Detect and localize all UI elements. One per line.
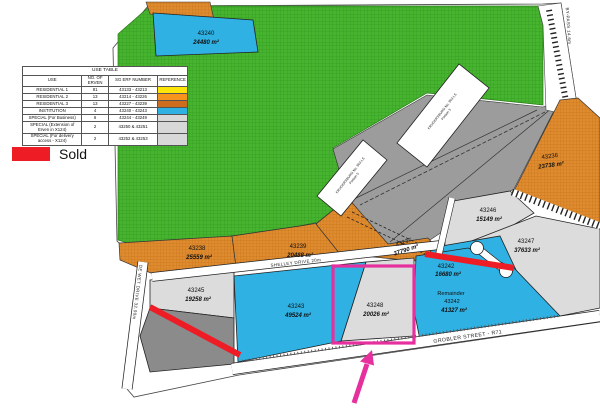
parcel-43246-id: 43246 xyxy=(480,208,497,214)
ref-swatch xyxy=(158,133,188,145)
parcel-43238-area: 25559 m² xyxy=(185,254,213,261)
use-table-row: RESIDENTIAL 213 43214 - 43226 xyxy=(23,94,188,101)
parcel-43240-id: 43240 xyxy=(198,31,215,37)
parcel-remainder-prefix: Remainder xyxy=(437,291,464,297)
township-map: BY-PASS 14.6m KRUGERSBURG No. 963-LS Por… xyxy=(0,0,600,415)
parcel-43239-id: 43239 xyxy=(290,244,307,250)
use-table-row: RESIDENTIAL 313 43227 - 43239 xyxy=(23,101,188,108)
parcel-43239-area: 20488 m² xyxy=(286,252,314,259)
parcel-43245-area: 19258 m² xyxy=(185,296,212,303)
site-plan-page: BY-PASS 14.6m KRUGERSBURG No. 963-LS Por… xyxy=(0,0,600,415)
sold-legend-label: Sold xyxy=(59,146,87,162)
parcel-43248-id: 43248 xyxy=(367,303,384,309)
sold-legend: Sold xyxy=(12,146,87,162)
use-table-row: SPECIAL (For delivery access - X124)2 43… xyxy=(23,133,188,145)
ref-swatch xyxy=(158,115,188,122)
use-table-title: USE TABLE xyxy=(23,67,188,76)
parcel-remainder-id: 43242 xyxy=(444,299,460,305)
parcel-43248-area: 20026 m² xyxy=(362,311,390,318)
parcel-43244-shape xyxy=(140,308,234,372)
parcel-43245-id: 43245 xyxy=(188,288,205,294)
parcel-43243-id: 43243 xyxy=(288,304,305,310)
use-table-row: SPECIAL (For Business)6 43244 - 43249 xyxy=(23,115,188,122)
parcel-43247-id: 43247 xyxy=(518,239,535,245)
ref-swatch xyxy=(158,101,188,108)
use-table: USE TABLE USE NO. OF ERVEN SG ERF NUMBER… xyxy=(22,66,188,146)
use-table-col-use: USE xyxy=(23,75,82,87)
parcel-43247-area: 37633 m² xyxy=(514,247,541,254)
use-table-row: RESIDENTIAL 181 43133 - 43213 xyxy=(23,87,188,94)
sold-swatch xyxy=(12,147,50,161)
parcel-43238-id: 43238 xyxy=(189,246,206,252)
use-table-row: SPECIAL (Extension of Erven in X124)2 43… xyxy=(23,122,188,134)
ref-swatch xyxy=(158,94,188,101)
use-table-col-ref: REFERENCE xyxy=(158,75,188,87)
parcel-remainder-area: 41327 m² xyxy=(440,307,468,314)
ref-swatch xyxy=(158,87,188,94)
parcel-43240-area: 24480 m² xyxy=(192,39,220,46)
use-table-col-erven: NO. OF ERVEN xyxy=(82,75,108,87)
use-table-row: INSTITUTION4 43240 - 43243 xyxy=(23,108,188,115)
parcel-43242-area: 16680 m² xyxy=(435,271,462,278)
use-table-col-sg: SG ERF NUMBER xyxy=(108,75,158,87)
parcel-43246-area: 15149 m² xyxy=(476,216,503,223)
ref-swatch xyxy=(158,108,188,115)
parcel-43242-id: 43242 xyxy=(438,264,455,270)
ref-swatch xyxy=(158,122,188,134)
parcel-43243-area: 49524 m² xyxy=(284,312,312,319)
